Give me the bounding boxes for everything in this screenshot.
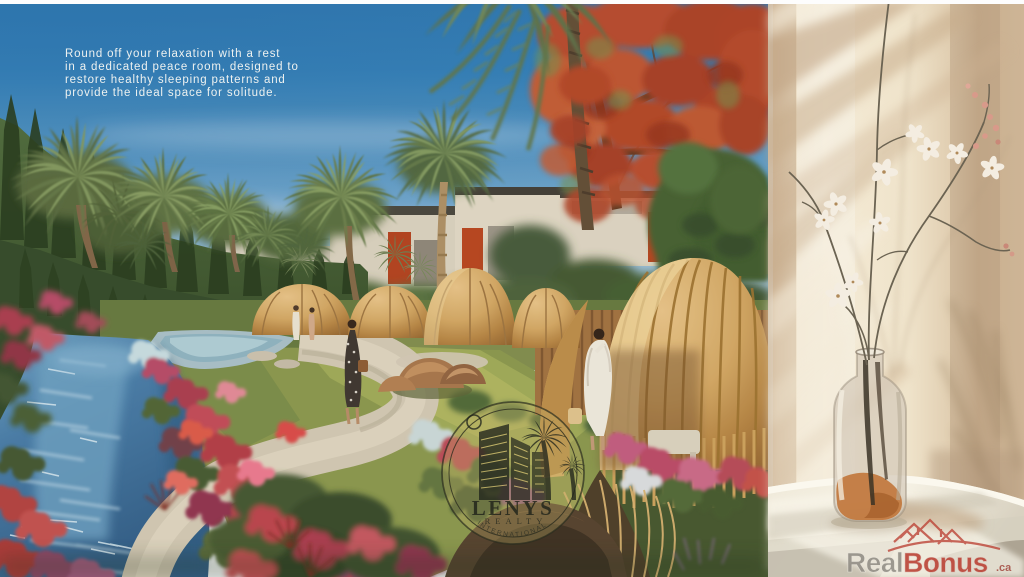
svg-text:.ca: .ca <box>996 562 1012 574</box>
svg-text:RealBonus: RealBonus <box>846 547 988 577</box>
svg-text:REALTY: REALTY <box>485 516 548 526</box>
